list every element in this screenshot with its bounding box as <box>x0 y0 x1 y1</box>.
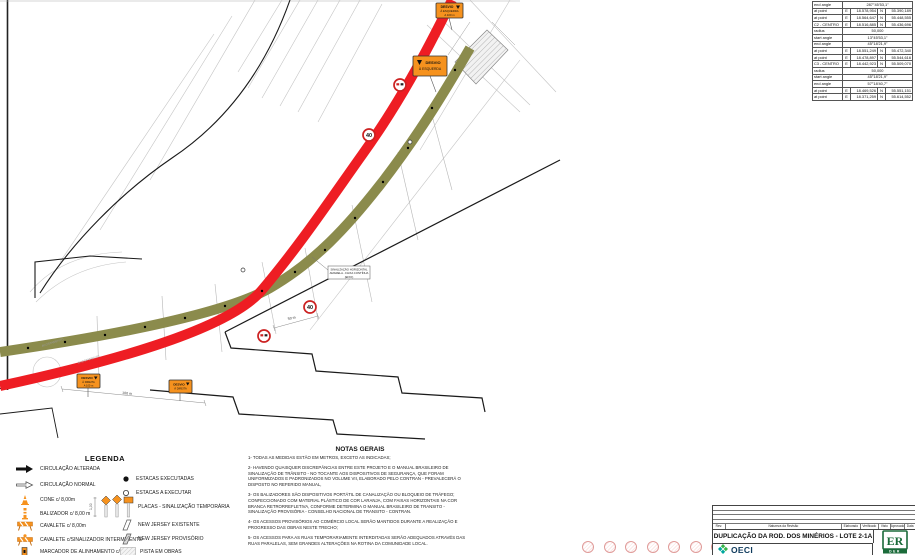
legend-item: CIRCULAÇÃO NORMAL <box>14 481 96 489</box>
legend-item: MARCADOR DE ALINHAMENTO c/ 8,00m <box>14 547 135 555</box>
coordinate-row: end angle57°18'40,7" <box>813 81 913 88</box>
legend-item: PISTA EM OBRAS <box>120 547 182 555</box>
legend-title: LEGENDA <box>55 454 155 463</box>
no-overtaking-sign <box>258 330 270 342</box>
contractor-logo: OECI <box>713 543 873 555</box>
curve-coordinates-table: end angle287°45'53,1" at pointE18.578,95… <box>812 1 913 101</box>
coordinate-row: at pointE18.578,954N55.390,189 <box>813 8 913 15</box>
altered-circulation-arrow-icon <box>14 465 36 473</box>
detour-sign: DESVIO À DIREITA A 100 m <box>77 374 100 397</box>
approval-stamp-icon <box>690 541 702 553</box>
coordinate-row: radius50,000 <box>813 28 913 35</box>
approval-stamp-icon <box>647 541 659 553</box>
coordinate-row: at pointE18.371,259N55.614,552 <box>813 94 913 101</box>
general-notes: NOTAS GERAIS 1- TODAS AS MEDIDAS ESTÃO E… <box>248 446 472 550</box>
note-paragraph: 5- OS ACESSOS PARA AS RUAS TEMPORARIAMEN… <box>248 535 472 547</box>
temporary-signs-icon: 1,00 <box>88 494 134 520</box>
new-jersey-existing-icon <box>120 519 134 531</box>
agency-logo: ER DER <box>874 529 915 555</box>
approval-stamps <box>582 541 723 553</box>
coordinate-row: C2 - CENTROE18.516,885N55.436,696 <box>813 21 913 28</box>
approval-stamp-icon <box>582 541 594 553</box>
title-block: Rev. Natureza da Revisão Elaborado Verif… <box>712 505 915 555</box>
oeci-logo-icon <box>718 541 728 555</box>
coordinate-row: C3 - CENTROE18.442,923N55.509,070 <box>813 61 913 68</box>
approval-stamp-icon <box>668 541 680 553</box>
legend-item: NEW JERSEY PROVISÓRIO <box>120 533 203 545</box>
coordinate-row: at pointE18.469,526N55.551,151 <box>813 87 913 94</box>
normal-circulation-arrow-icon <box>14 481 36 489</box>
svg-text:1,00: 1,00 <box>89 503 93 510</box>
coordinate-row: start angle13°45'53,1" <box>813 34 913 41</box>
svg-text:A 100 m: A 100 m <box>84 383 94 387</box>
delineator-post-icon <box>14 508 36 520</box>
legend-item: ESTACAS EXECUTADAS <box>120 475 194 483</box>
svg-text:A 100 m: A 100 m <box>444 13 455 17</box>
coordinate-row: at pointE18.478,897N55.544,616 <box>813 54 913 61</box>
coordinate-row: at pointE18.551,249N55.472,340 <box>813 48 913 55</box>
der-logo-text: DER <box>889 550 901 554</box>
cone-icon <box>14 495 36 505</box>
legend-item: NEW JERSEY EXISTENTE <box>120 519 200 531</box>
coordinate-row: end angle287°45'53,1" <box>813 2 913 9</box>
closed-lane-band <box>0 0 452 386</box>
horizontal-signing-callout: SINALIZAÇÃO HORIZONTAL AMARELA - FAIXA C… <box>312 257 370 279</box>
executed-stake-icon <box>120 475 132 483</box>
note-paragraph: 1- TODAS AS MEDIDAS ESTÃO EM METROS, EXC… <box>248 455 472 461</box>
coordinate-row: start angle45°18'21,9" <box>813 74 913 81</box>
alignment-marker-icon <box>14 547 36 555</box>
note-paragraph: 2- HAVENDO QUAISQUER DISCREPÂNCIAS ENTRE… <box>248 465 472 488</box>
speed-limit-sign: 40 <box>363 129 375 141</box>
dim-50m-label: 50 m <box>287 315 296 321</box>
plan-view-drawing: 50 m 100 m ACOSTAMENTO ACOSTAMENTO SINAL… <box>0 0 915 445</box>
no-overtaking-sign <box>394 79 406 91</box>
svg-text:À ESQUERDA: À ESQUERDA <box>419 67 442 71</box>
drawing-sheet: 50 m 100 m ACOSTAMENTO ACOSTAMENTO SINAL… <box>0 0 915 555</box>
approval-stamp-icon <box>625 541 637 553</box>
legend-item: CONE c/ 8,00m <box>14 495 75 505</box>
svg-text:À DIREITA: À DIREITA <box>82 380 95 384</box>
coordinate-row: radius50,000 <box>813 67 913 74</box>
svg-text:DESVIO: DESVIO <box>425 60 440 65</box>
new-jersey-temporary-icon <box>120 533 134 545</box>
svg-text:40: 40 <box>366 133 372 139</box>
notes-title: NOTAS GERAIS <box>248 446 472 453</box>
approval-stamp-icon <box>604 541 616 553</box>
coordinate-row: at pointE18.564,647N55.448,555 <box>813 15 913 22</box>
lane-under-works-swatch <box>120 547 136 555</box>
legend-item: BALIZADOR c/ 8,00 m <box>14 508 90 520</box>
svg-text:(EIXO): (EIXO) <box>345 275 354 279</box>
barrier-flasher-icon <box>14 534 36 546</box>
project-title: DUPLICAÇÃO DA ROD. DOS MINÉRIOS - LOTE 2… <box>713 529 874 543</box>
der-monogram: ER <box>886 534 903 548</box>
legend-item: CAVALETE c/ 8,00m <box>14 521 86 531</box>
note-paragraph: 4- OS ACESSOS PROVISÓRIOS AO COMÉRCIO LO… <box>248 519 472 531</box>
coordinate-row: end angle45°18'21,9" <box>813 41 913 48</box>
legend-item: CIRCULAÇÃO ALTERADA <box>14 465 100 473</box>
svg-text:40: 40 <box>307 305 313 311</box>
oeci-logo-text: OECI <box>731 545 753 555</box>
speed-limit-sign: 40 <box>304 301 316 313</box>
svg-text:À DIREITA: À DIREITA <box>174 387 187 391</box>
detour-sign: DESVIO À DIREITA <box>169 380 192 401</box>
legend-item: 1,00 PLACAS - SINALIZAÇÃO TEMPORÁRIA <box>88 494 230 520</box>
svg-text:DESVIO: DESVIO <box>173 383 185 387</box>
svg-text:DESVIO: DESVIO <box>81 376 93 380</box>
note-paragraph: 3- OS BALIZADORES SÃO DISPOSITIVOS PORTÁ… <box>248 492 472 515</box>
barrier-trestle-icon <box>14 521 36 531</box>
